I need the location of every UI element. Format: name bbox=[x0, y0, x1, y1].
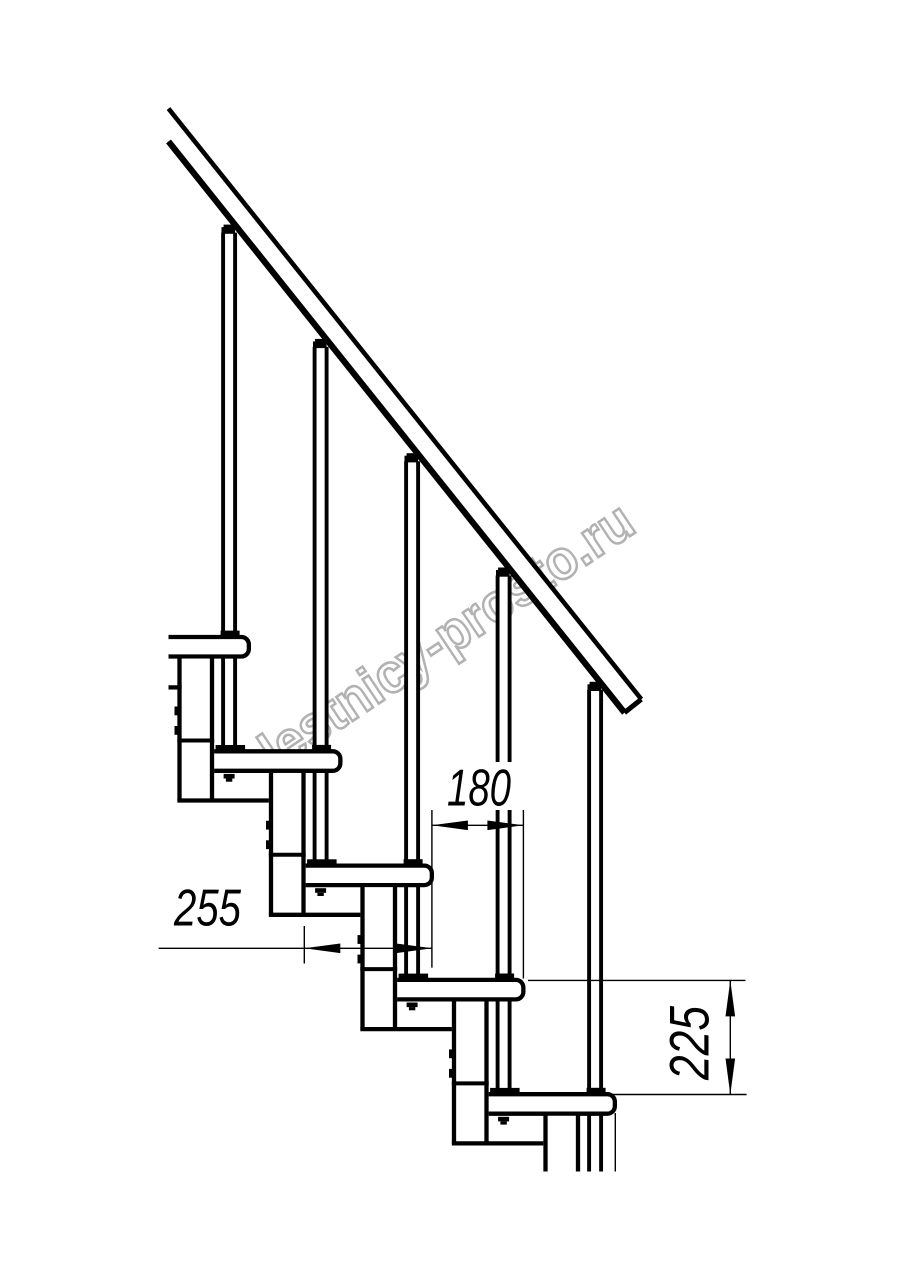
svg-text:180: 180 bbox=[447, 759, 511, 817]
svg-text:225: 225 bbox=[658, 1005, 721, 1080]
svg-text:255: 255 bbox=[173, 880, 242, 938]
